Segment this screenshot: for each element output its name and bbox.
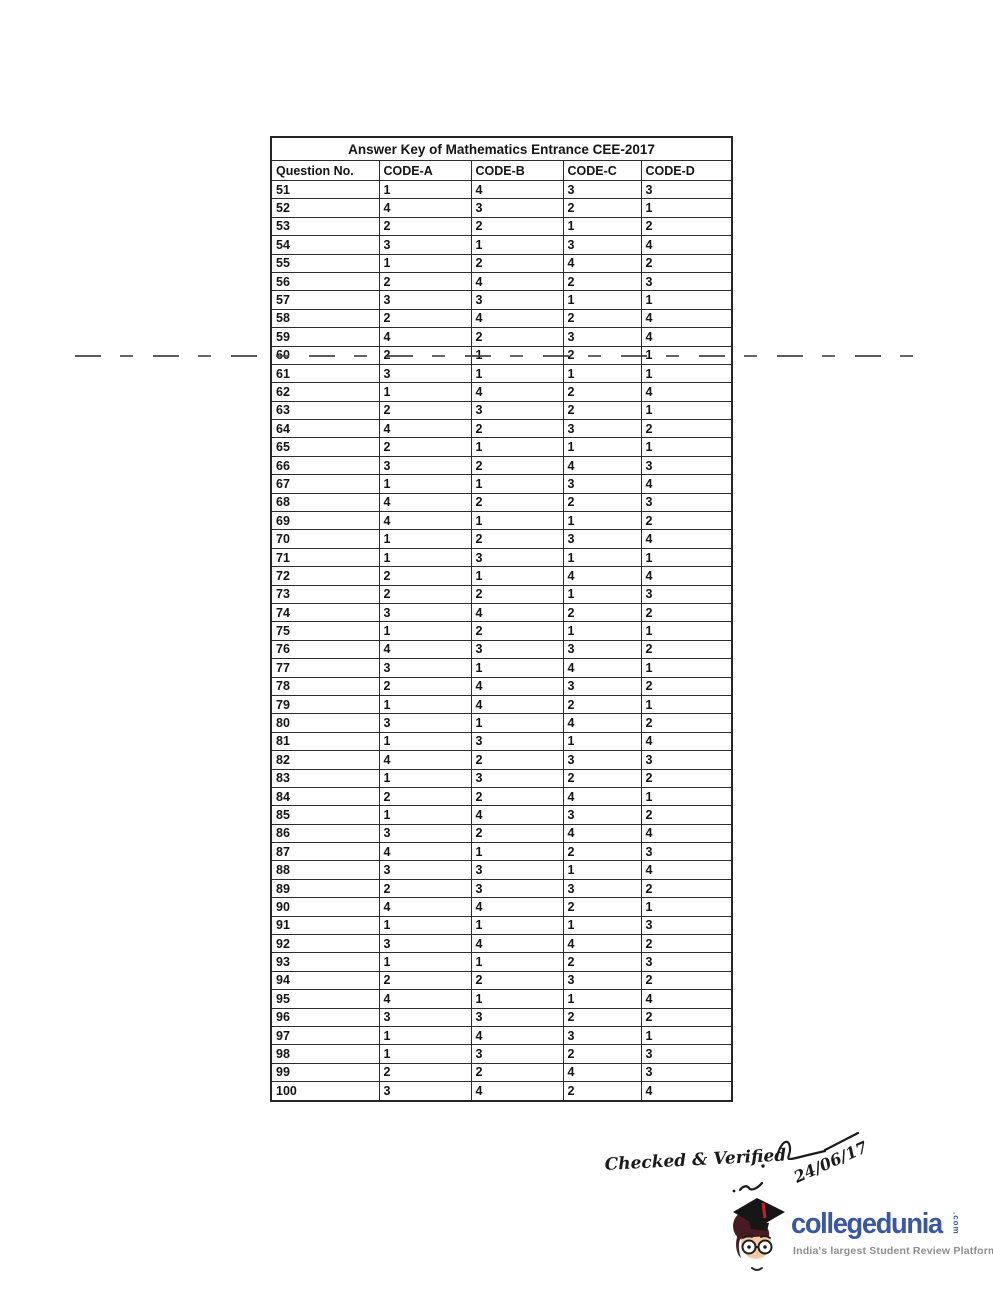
answer-cell: 1 — [471, 475, 563, 493]
question-number-cell: 73 — [271, 585, 379, 603]
answer-cell: 2 — [471, 328, 563, 346]
answer-cell: 1 — [379, 383, 471, 401]
answer-cell: 2 — [563, 953, 641, 971]
table-row: 551242 — [271, 254, 732, 272]
question-number-cell: 67 — [271, 475, 379, 493]
answer-cell: 1 — [379, 548, 471, 566]
answer-cell: 3 — [563, 1026, 641, 1044]
question-number-cell: 84 — [271, 787, 379, 805]
question-number-cell: 66 — [271, 456, 379, 474]
answer-cell: 2 — [471, 751, 563, 769]
question-number-cell: 75 — [271, 622, 379, 640]
answer-cell: 2 — [563, 493, 641, 511]
question-number-cell: 61 — [271, 364, 379, 382]
answer-cell: 1 — [563, 916, 641, 934]
answer-cell: 2 — [563, 401, 641, 419]
table-row: 573311 — [271, 291, 732, 309]
answer-cell: 3 — [471, 1045, 563, 1063]
answer-cell: 3 — [379, 603, 471, 621]
answer-cell: 2 — [471, 456, 563, 474]
question-number-cell: 89 — [271, 879, 379, 897]
table-row: 923442 — [271, 935, 732, 953]
mascot-graduate-icon — [727, 1196, 789, 1274]
answer-cell: 4 — [379, 898, 471, 916]
table-row: 791421 — [271, 695, 732, 713]
answer-cell: 3 — [563, 475, 641, 493]
answer-cell: 1 — [471, 438, 563, 456]
answer-cell: 1 — [379, 769, 471, 787]
question-number-cell: 81 — [271, 732, 379, 750]
question-number-cell: 68 — [271, 493, 379, 511]
answer-cell: 4 — [641, 530, 732, 548]
table-row: 663243 — [271, 456, 732, 474]
answer-cell: 1 — [471, 916, 563, 934]
question-number-cell: 97 — [271, 1026, 379, 1044]
question-number-cell: 86 — [271, 824, 379, 842]
question-number-cell: 52 — [271, 199, 379, 217]
answer-cell: 3 — [641, 493, 732, 511]
answer-cell: 4 — [379, 420, 471, 438]
answer-cell: 1 — [563, 512, 641, 530]
column-header-code-c: CODE-C — [563, 161, 641, 181]
answer-cell: 3 — [471, 548, 563, 566]
question-number-cell: 53 — [271, 217, 379, 235]
answer-cell: 3 — [379, 659, 471, 677]
table-row: 594234 — [271, 328, 732, 346]
answer-cell: 4 — [563, 254, 641, 272]
handwritten-checked-text: Checked & Verified — [604, 1146, 787, 1175]
answer-cell: 4 — [563, 456, 641, 474]
question-number-cell: 95 — [271, 990, 379, 1008]
question-number-cell: 92 — [271, 935, 379, 953]
answer-cell: 4 — [379, 493, 471, 511]
scanned-answer-key-page: Answer Key of Mathematics Entrance CEE-2… — [0, 0, 993, 1303]
answer-cell: 2 — [563, 383, 641, 401]
answer-cell: 2 — [471, 1063, 563, 1081]
answer-cell: 3 — [379, 364, 471, 382]
answer-cell: 1 — [379, 732, 471, 750]
answer-cell: 4 — [471, 603, 563, 621]
column-header-code-d: CODE-D — [641, 161, 732, 181]
answer-cell: 4 — [641, 309, 732, 327]
table-row: 671134 — [271, 475, 732, 493]
question-number-cell: 77 — [271, 659, 379, 677]
answer-cell: 3 — [563, 640, 641, 658]
answer-cell: 4 — [471, 677, 563, 695]
answer-cell: 2 — [471, 787, 563, 805]
question-number-cell: 79 — [271, 695, 379, 713]
question-number-cell: 57 — [271, 291, 379, 309]
table-row: 963322 — [271, 1008, 732, 1026]
answer-cell: 2 — [379, 272, 471, 290]
answer-cell: 1 — [379, 695, 471, 713]
answer-cell: 1 — [641, 438, 732, 456]
answer-cell: 1 — [563, 732, 641, 750]
answer-cell: 4 — [471, 935, 563, 953]
question-number-cell: 91 — [271, 916, 379, 934]
answer-cell: 3 — [471, 640, 563, 658]
table-title-row: Answer Key of Mathematics Entrance CEE-2… — [271, 137, 732, 161]
answer-cell: 4 — [379, 751, 471, 769]
answer-cell: 2 — [641, 603, 732, 621]
question-number-cell: 85 — [271, 806, 379, 824]
answer-cell: 3 — [641, 585, 732, 603]
answer-cell: 3 — [471, 401, 563, 419]
answer-cell: 3 — [563, 971, 641, 989]
answer-cell: 2 — [563, 603, 641, 621]
logo-wordmark: collegedunia.com — [791, 1208, 960, 1241]
answer-cell: 1 — [641, 199, 732, 217]
answer-cell: 1 — [563, 990, 641, 1008]
table-row: 701234 — [271, 530, 732, 548]
answer-cell: 2 — [641, 806, 732, 824]
answer-cell: 3 — [379, 456, 471, 474]
question-number-cell: 69 — [271, 512, 379, 530]
answer-cell: 4 — [641, 383, 732, 401]
table-row: 981323 — [271, 1045, 732, 1063]
answer-cell: 4 — [563, 567, 641, 585]
table-row: 874123 — [271, 843, 732, 861]
table-row: 644232 — [271, 420, 732, 438]
answer-cell: 4 — [471, 272, 563, 290]
question-number-cell: 100 — [271, 1082, 379, 1101]
question-number-cell: 56 — [271, 272, 379, 290]
table-row: 711311 — [271, 548, 732, 566]
answer-cell: 1 — [563, 364, 641, 382]
table-row: 971431 — [271, 1026, 732, 1044]
answer-cell: 2 — [641, 217, 732, 235]
answer-cell: 4 — [471, 383, 563, 401]
table-row: 524321 — [271, 199, 732, 217]
table-row: 904421 — [271, 898, 732, 916]
scan-artifact-dashed-line — [75, 355, 931, 357]
answer-cell: 4 — [471, 181, 563, 199]
answer-cell: 3 — [563, 751, 641, 769]
answer-cell: 2 — [563, 1008, 641, 1026]
column-header-code-a: CODE-A — [379, 161, 471, 181]
answer-cell: 3 — [471, 291, 563, 309]
table-row: 773141 — [271, 659, 732, 677]
answer-cell: 3 — [563, 806, 641, 824]
table-row: 632321 — [271, 401, 732, 419]
answer-cell: 4 — [471, 309, 563, 327]
handwritten-period-dot — [761, 1164, 764, 1167]
question-number-cell: 54 — [271, 236, 379, 254]
answer-cell: 1 — [641, 1026, 732, 1044]
question-number-cell: 71 — [271, 548, 379, 566]
question-number-cell: 72 — [271, 567, 379, 585]
answer-cell: 2 — [471, 217, 563, 235]
question-number-cell: 88 — [271, 861, 379, 879]
table-row: 511433 — [271, 181, 732, 199]
question-number-cell: 99 — [271, 1063, 379, 1081]
answer-cell: 3 — [641, 1063, 732, 1081]
answer-cell: 1 — [641, 695, 732, 713]
answer-cell: 1 — [563, 291, 641, 309]
answer-cell: 3 — [471, 879, 563, 897]
table-title: Answer Key of Mathematics Entrance CEE-2… — [271, 137, 732, 161]
answer-cell: 2 — [471, 585, 563, 603]
answer-cell: 4 — [379, 199, 471, 217]
table-row: 732213 — [271, 585, 732, 603]
answer-cell: 2 — [563, 1082, 641, 1101]
answer-cell: 2 — [379, 879, 471, 897]
table-row: 842241 — [271, 787, 732, 805]
answer-cell: 2 — [641, 512, 732, 530]
answer-cell: 2 — [379, 401, 471, 419]
answer-cell: 1 — [379, 475, 471, 493]
answer-cell: 4 — [379, 328, 471, 346]
answer-cell: 1 — [471, 990, 563, 1008]
answer-cell: 1 — [563, 861, 641, 879]
answer-cell: 3 — [379, 824, 471, 842]
answer-cell: 2 — [379, 787, 471, 805]
answer-cell: 3 — [379, 714, 471, 732]
answer-cell: 1 — [641, 898, 732, 916]
question-number-cell: 90 — [271, 898, 379, 916]
answer-cell: 4 — [563, 935, 641, 953]
question-number-cell: 59 — [271, 328, 379, 346]
answer-cell: 2 — [563, 199, 641, 217]
answer-cell: 2 — [471, 493, 563, 511]
answer-key-table: Answer Key of Mathematics Entrance CEE-2… — [270, 136, 733, 1102]
answer-cell: 2 — [563, 309, 641, 327]
table-row: 652111 — [271, 438, 732, 456]
table-row: 831322 — [271, 769, 732, 787]
answer-cell: 2 — [471, 530, 563, 548]
answer-cell: 1 — [379, 181, 471, 199]
answer-cell: 4 — [471, 806, 563, 824]
table-row: 863244 — [271, 824, 732, 842]
column-header-question-no-: Question No. — [271, 161, 379, 181]
answer-cell: 3 — [641, 953, 732, 971]
answer-cell: 4 — [641, 732, 732, 750]
table-row: 613111 — [271, 364, 732, 382]
table-row: 811314 — [271, 732, 732, 750]
answer-cell: 3 — [563, 879, 641, 897]
answer-cell: 1 — [379, 806, 471, 824]
answer-cell: 3 — [379, 1008, 471, 1026]
answer-cell: 2 — [379, 217, 471, 235]
answer-cell: 3 — [379, 1082, 471, 1101]
answer-cell: 4 — [471, 898, 563, 916]
table-row: 883314 — [271, 861, 732, 879]
answer-cell: 2 — [379, 1063, 471, 1081]
answer-cell: 1 — [471, 953, 563, 971]
answer-cell: 1 — [641, 291, 732, 309]
answer-cell: 1 — [471, 364, 563, 382]
answer-cell: 1 — [379, 1026, 471, 1044]
answer-cell: 2 — [563, 898, 641, 916]
answer-cell: 4 — [641, 567, 732, 585]
logo-brand-text: collegedunia — [791, 1208, 942, 1241]
answer-cell: 1 — [379, 622, 471, 640]
answer-cell: 4 — [379, 640, 471, 658]
answer-cell: 4 — [641, 861, 732, 879]
answer-cell: 2 — [379, 567, 471, 585]
table-row: 694112 — [271, 512, 732, 530]
answer-cell: 1 — [641, 787, 732, 805]
answer-cell: 4 — [563, 714, 641, 732]
answer-cell: 2 — [379, 438, 471, 456]
question-number-cell: 64 — [271, 420, 379, 438]
answer-cell: 3 — [379, 935, 471, 953]
answer-cell: 3 — [641, 843, 732, 861]
answer-cell: 2 — [563, 843, 641, 861]
answer-cell: 3 — [641, 181, 732, 199]
answer-cell: 2 — [641, 254, 732, 272]
answer-cell: 2 — [471, 254, 563, 272]
answer-cell: 2 — [379, 585, 471, 603]
answer-cell: 1 — [379, 530, 471, 548]
table-row: 782432 — [271, 677, 732, 695]
answer-cell: 4 — [379, 990, 471, 1008]
answer-cell: 2 — [563, 1045, 641, 1063]
answer-cell: 3 — [471, 199, 563, 217]
question-number-cell: 70 — [271, 530, 379, 548]
answer-cell: 1 — [563, 438, 641, 456]
answer-cell: 2 — [641, 677, 732, 695]
answer-cell: 1 — [471, 512, 563, 530]
answer-cell: 2 — [471, 420, 563, 438]
answer-cell: 1 — [641, 548, 732, 566]
answer-cell: 1 — [471, 659, 563, 677]
answer-cell: 1 — [563, 548, 641, 566]
question-number-cell: 96 — [271, 1008, 379, 1026]
table-row: 992243 — [271, 1063, 732, 1081]
answer-cell: 2 — [641, 935, 732, 953]
table-row: 824233 — [271, 751, 732, 769]
table-row: 764332 — [271, 640, 732, 658]
question-number-cell: 80 — [271, 714, 379, 732]
question-number-cell: 83 — [271, 769, 379, 787]
table-row: 954114 — [271, 990, 732, 1008]
answer-cell: 3 — [379, 291, 471, 309]
answer-cell: 1 — [563, 217, 641, 235]
table-row: 751211 — [271, 622, 732, 640]
answer-cell: 1 — [379, 254, 471, 272]
table-row: 532212 — [271, 217, 732, 235]
question-number-cell: 87 — [271, 843, 379, 861]
answer-cell: 1 — [641, 622, 732, 640]
question-number-cell: 82 — [271, 751, 379, 769]
table-row: 803142 — [271, 714, 732, 732]
answer-cell: 2 — [641, 640, 732, 658]
answer-cell: 4 — [379, 512, 471, 530]
question-number-cell: 51 — [271, 181, 379, 199]
answer-cell: 4 — [471, 695, 563, 713]
answer-cell: 3 — [641, 456, 732, 474]
question-number-cell: 58 — [271, 309, 379, 327]
answer-cell: 2 — [641, 971, 732, 989]
column-header-code-b: CODE-B — [471, 161, 563, 181]
answer-cell: 1 — [641, 401, 732, 419]
question-number-cell: 65 — [271, 438, 379, 456]
answer-cell: 2 — [471, 971, 563, 989]
answer-cell: 2 — [563, 695, 641, 713]
question-number-cell: 63 — [271, 401, 379, 419]
answer-cell: 2 — [641, 1008, 732, 1026]
answer-cell: 3 — [379, 861, 471, 879]
answer-cell: 2 — [471, 622, 563, 640]
answer-cell: 2 — [641, 420, 732, 438]
table-row: 1003424 — [271, 1082, 732, 1101]
answer-cell: 3 — [563, 236, 641, 254]
answer-cell: 4 — [471, 1082, 563, 1101]
answer-cell: 3 — [641, 916, 732, 934]
answer-cell: 3 — [641, 1045, 732, 1063]
answer-cell: 1 — [563, 585, 641, 603]
answer-cell: 4 — [379, 843, 471, 861]
question-number-cell: 55 — [271, 254, 379, 272]
answer-cell: 3 — [563, 677, 641, 695]
answer-cell: 2 — [641, 714, 732, 732]
table-row: 911113 — [271, 916, 732, 934]
question-number-cell: 76 — [271, 640, 379, 658]
logo-tagline: India's largest Student Review Platform — [793, 1245, 993, 1257]
answer-cell: 1 — [471, 843, 563, 861]
answer-cell: 2 — [379, 309, 471, 327]
table-row: 621424 — [271, 383, 732, 401]
answer-cell: 2 — [379, 971, 471, 989]
answer-cell: 2 — [563, 769, 641, 787]
answer-cell: 4 — [641, 824, 732, 842]
table-row: 543134 — [271, 236, 732, 254]
answer-cell: 4 — [563, 659, 641, 677]
table-row: 931123 — [271, 953, 732, 971]
question-number-cell: 74 — [271, 603, 379, 621]
question-number-cell: 62 — [271, 383, 379, 401]
answer-cell: 4 — [563, 1063, 641, 1081]
answer-cell: 4 — [641, 328, 732, 346]
table-header-row: Question No.CODE-ACODE-BCODE-CCODE-D — [271, 161, 732, 181]
answer-cell: 3 — [641, 272, 732, 290]
question-number-cell: 98 — [271, 1045, 379, 1063]
answer-cell: 3 — [563, 328, 641, 346]
answer-cell: 4 — [641, 475, 732, 493]
answer-cell: 1 — [379, 953, 471, 971]
answer-cell: 4 — [471, 1026, 563, 1044]
answer-cell: 4 — [641, 236, 732, 254]
answer-cell: 1 — [641, 659, 732, 677]
answer-cell: 3 — [641, 751, 732, 769]
answer-cell: 3 — [379, 236, 471, 254]
table-row: 851432 — [271, 806, 732, 824]
table-row: 582424 — [271, 309, 732, 327]
answer-cell: 1 — [471, 236, 563, 254]
handwritten-date: 24/06/17 — [790, 1137, 870, 1187]
table-row: 942232 — [271, 971, 732, 989]
table-row: 562423 — [271, 272, 732, 290]
answer-cell: 3 — [471, 732, 563, 750]
answer-cell: 3 — [563, 530, 641, 548]
answer-cell: 2 — [471, 824, 563, 842]
question-number-cell: 93 — [271, 953, 379, 971]
table-row: 684223 — [271, 493, 732, 511]
answer-cell: 2 — [641, 879, 732, 897]
answer-cell: 2 — [379, 677, 471, 695]
table-row: 743422 — [271, 603, 732, 621]
answer-cell: 1 — [641, 364, 732, 382]
answer-cell: 2 — [641, 769, 732, 787]
answer-cell: 4 — [641, 1082, 732, 1101]
table-row: 722144 — [271, 567, 732, 585]
answer-cell: 1 — [471, 714, 563, 732]
answer-cell: 3 — [471, 861, 563, 879]
question-number-cell: 94 — [271, 971, 379, 989]
answer-cell: 3 — [471, 1008, 563, 1026]
answer-cell: 3 — [563, 181, 641, 199]
